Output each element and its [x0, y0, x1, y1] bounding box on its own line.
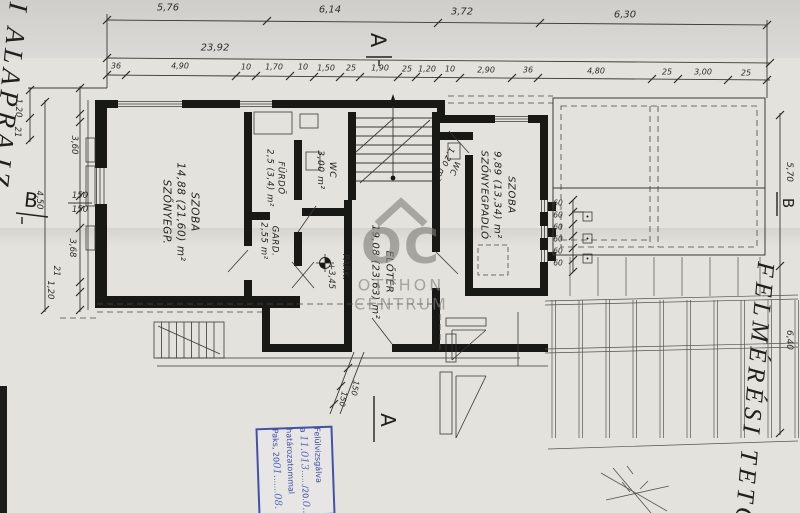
fixtures-and-doors [86, 112, 486, 438]
dim-label: 1,90 [371, 64, 389, 73]
room-name: ELŐTÉR [382, 225, 396, 320]
dim-label: 25 [402, 65, 412, 74]
dim-label: 10 [445, 65, 455, 74]
dim-label: 6,40 [784, 330, 794, 350]
dim-label: 2,90 [477, 66, 495, 75]
dim-label: 60 [553, 211, 563, 220]
window-dim-label: 150 [72, 205, 88, 215]
dim-label: 25 [662, 68, 672, 77]
dim-label: 25 [741, 69, 751, 78]
approval-stamp: Felülvizsgálva a 11.013....../20.0... ha… [255, 426, 335, 513]
dim-label: 3,60 [69, 136, 79, 155]
stamp-line-2: a 11.013....../20.0... [294, 427, 313, 513]
dim-label: 25 [346, 64, 356, 73]
stamp-line-4: Paks, 2001.......08. [266, 428, 285, 513]
room-name: SZOBA [504, 150, 518, 239]
dim-label: 5,76 [157, 3, 179, 14]
floorplan-linework [0, 0, 800, 513]
dim-label: 21 [12, 127, 22, 138]
dim-label: 36 [523, 66, 533, 75]
dim-label: 6,14 [319, 5, 341, 16]
section-b-marker-right: B [779, 198, 797, 208]
stamp-handwriting: 08. [271, 493, 283, 509]
dim-label: 4,80 [587, 67, 605, 76]
dashed-furniture [478, 245, 508, 275]
dim-label: 5,70 [784, 162, 794, 182]
dim-label: 36 [111, 62, 121, 71]
room-area: 2,5 (3,4) m² [263, 149, 274, 207]
scanned-floorplan-page: TI ALAPRAJZ FELMÉRÉSI TETŐTÉRI A A B B 5… [0, 0, 800, 513]
dim-label: 10 [298, 63, 308, 72]
dim-total-label: 23,92 [201, 43, 230, 54]
room-area: 9,89 (13,34) m² [490, 150, 504, 239]
room-floor: SZŐNYEGP. [159, 162, 173, 261]
stamp-handwriting: 0... [299, 500, 311, 513]
dim-label: 4,90 [171, 62, 189, 71]
dim-label: 3,72 [451, 7, 473, 18]
roof-terrace [553, 98, 765, 263]
room-name: WC [326, 150, 338, 189]
dim-label: 4,50 [34, 191, 44, 210]
window-dim-label: 150 [72, 191, 88, 201]
dim-label: 60 [553, 235, 563, 244]
dim-label: 21 [51, 266, 61, 277]
dim-label: 1,50 [317, 64, 335, 73]
room-area: 19,08 (23,63) m² [369, 225, 383, 320]
dimension-lines [28, 14, 780, 435]
section-a-marker-bottom: A [376, 413, 400, 427]
section-marker-lines [16, 57, 777, 442]
dim-label: 3,00 [694, 68, 712, 77]
stamp-handwriting: 01. [270, 461, 282, 477]
room-label-szoba1: SZOBA 14,88 (21,60) m² SZŐNYEGP. [159, 162, 202, 261]
dim-label: 1,20 [13, 99, 23, 118]
room-label-eloter: ELŐTÉR 19,08 (23,63) m² [369, 225, 396, 320]
dim-label: 60 [553, 247, 563, 256]
sight-lines [601, 466, 669, 513]
room-area: 3,00 m² [314, 150, 326, 189]
dim-label: 3,68 [67, 239, 77, 258]
dim-label: 10 [241, 63, 251, 72]
dim-label: 6,30 [614, 10, 636, 21]
room-floor: SZŐNYEGPADLÓ [477, 150, 491, 239]
dim-label: 60 [553, 199, 563, 208]
section-a-marker-top: A [366, 33, 390, 47]
dim-label: 60 [553, 259, 563, 268]
approval-stamp-text: Felülvizsgálva a 11.013....../20.0... ha… [266, 427, 325, 513]
dim-label: 1,20 [45, 281, 55, 300]
level-label: +3,45 [326, 263, 336, 289]
room-name: GARD. [268, 222, 279, 260]
dim-label: 1,20 [418, 65, 436, 74]
room-label-wc1: WC 3,00 m² [314, 150, 338, 189]
dim-label: 1,70 [265, 63, 283, 72]
room-label-gard: GARD. 2,55 m² [257, 222, 280, 260]
room-label-furdo: FÜRDŐ 2,5 (3,4) m² [263, 149, 286, 207]
room-name: FÜRDŐ [274, 149, 285, 207]
stamp-handwriting: 11.013 [297, 435, 309, 470]
park-label: PARK. [340, 254, 350, 280]
room-area: 2,55 m² [257, 222, 268, 260]
room-area: 14,88 (21,60) m² [173, 162, 187, 261]
room-label-szoba2: SZOBA 9,89 (13,34) m² SZŐNYEGPADLÓ [477, 150, 518, 239]
dim-label: 60 [553, 223, 563, 232]
room-name: SZOBA [187, 162, 201, 261]
watermark-roof-icon [377, 202, 425, 224]
